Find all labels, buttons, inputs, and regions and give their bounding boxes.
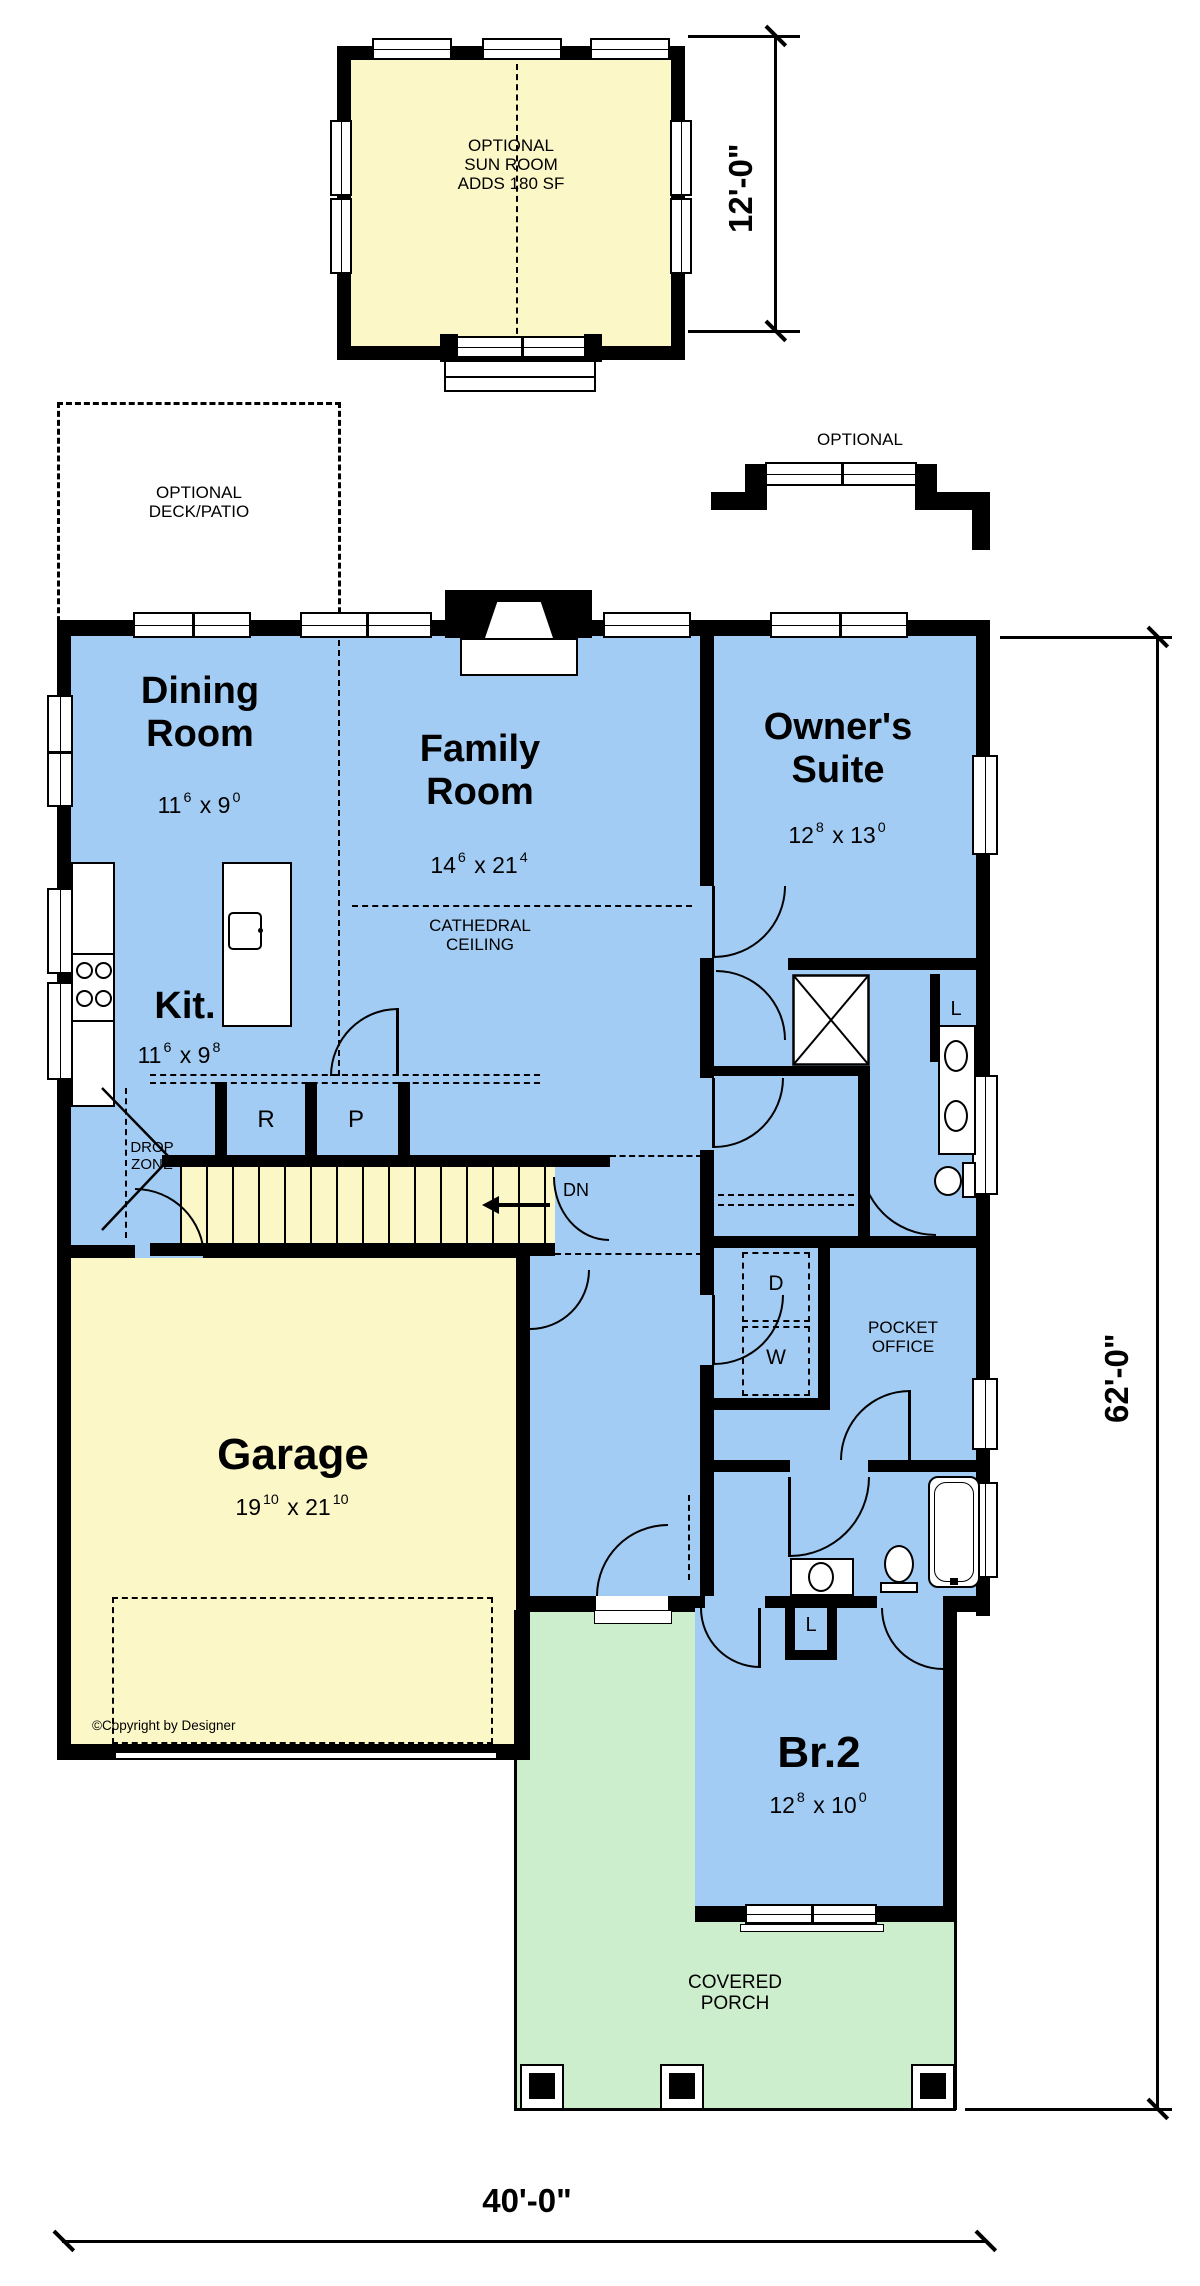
bay-wall-right-stub xyxy=(972,492,990,550)
dim-bottom-line xyxy=(62,2240,987,2243)
owners-sink-2 xyxy=(944,1100,968,1132)
sun-room-label: OPTIONAL SUN ROOM ADDS 180 SF xyxy=(396,136,626,193)
porch-edge-left xyxy=(514,1610,517,2110)
pocket-office-label: POCKET OFFICE xyxy=(833,1318,973,1356)
br2-sliding-window xyxy=(745,1904,877,1924)
wall-front-left xyxy=(530,1596,596,1612)
down-marker: DN xyxy=(552,1180,600,1201)
linen-owner-marker: L xyxy=(936,998,976,1021)
hall-bath-sink xyxy=(808,1562,834,1592)
sunroom-dim-text: 12'-0" xyxy=(722,132,774,244)
owners-size: 128 x 130 xyxy=(728,822,948,849)
tub-drain xyxy=(950,1578,958,1585)
linen-hall-marker: L xyxy=(789,1614,833,1637)
bay-window xyxy=(765,462,917,486)
kitchen-size: 116 x 98 xyxy=(95,1042,265,1069)
sun-room-window-left-2 xyxy=(330,198,352,274)
dining-window-top xyxy=(133,612,251,638)
wall-family-owners-a xyxy=(700,636,714,886)
hall-cased-opening xyxy=(688,1495,690,1580)
wall-family-owners-b xyxy=(700,958,714,1078)
br2-size: 128 x 100 xyxy=(719,1792,919,1819)
wall-wic-top xyxy=(714,1066,858,1076)
island-faucet xyxy=(258,928,263,933)
wall-br2-bottom-a xyxy=(695,1906,745,1922)
owners-toilet-tank xyxy=(962,1162,976,1198)
wall-pocket-office-bottom-b xyxy=(868,1460,976,1472)
porch-column-1 xyxy=(520,2064,564,2110)
pantry-door-leaf xyxy=(396,1008,399,1076)
kitchen-window-left-2 xyxy=(47,982,73,1080)
porch-column-3 xyxy=(911,2064,955,2110)
stair-dashed-upper xyxy=(610,1155,702,1157)
refrigerator-marker: R xyxy=(238,1106,294,1134)
wall-br2-top-a xyxy=(695,1596,705,1608)
hall-bath-door-leaf xyxy=(788,1477,791,1557)
dining-size: 116 x 90 xyxy=(90,792,310,819)
wall-garage-top-a xyxy=(57,1245,135,1258)
sunroom-dim-ext-top xyxy=(688,35,800,38)
bay-label: OPTIONAL xyxy=(790,430,930,449)
dining-label: Dining Room xyxy=(90,670,310,755)
owners-sink-1 xyxy=(944,1040,968,1072)
family-label: Family Room xyxy=(360,728,600,813)
island-sink xyxy=(228,912,262,950)
br2-window-sill xyxy=(740,1924,884,1932)
tub-inner xyxy=(934,1482,974,1582)
sun-room-sliding-door xyxy=(456,336,586,358)
kitchen-counter xyxy=(71,862,115,1107)
cathedral-ceiling-line xyxy=(352,905,692,907)
sun-room-structure xyxy=(337,46,685,360)
garage-door xyxy=(115,1752,497,1759)
cooktop-burner-4 xyxy=(95,990,112,1007)
dim-right-ext-top xyxy=(1000,636,1172,639)
dining-window-left xyxy=(47,695,73,807)
dim-right-text: 62'-0" xyxy=(1098,1308,1154,1448)
garage-label: Garage xyxy=(148,1430,438,1479)
sun-room-center-line xyxy=(516,64,518,344)
cathedral-label: CATHEDRAL CEILING xyxy=(380,916,580,954)
floor-plan: OPTIONAL SUN ROOM ADDS 180 SF 12'-0" OPT… xyxy=(0,0,1200,2286)
wall-garage-top-b xyxy=(205,1245,530,1258)
covered-porch-label: COVERED PORCH xyxy=(630,1972,840,2015)
porch-edge-bottom xyxy=(514,2108,956,2111)
pantry-marker: P xyxy=(328,1106,384,1134)
stairs-dn-arrow-shaft xyxy=(498,1203,550,1207)
owners-label: Owner's Suite xyxy=(728,706,948,791)
owners-toilet-bowl xyxy=(934,1166,962,1196)
wall-rp-left xyxy=(215,1082,227,1162)
pocket-office-door-leaf xyxy=(908,1390,911,1460)
kitchen-window-left-1 xyxy=(47,888,73,974)
cooktop-burner-1 xyxy=(76,962,93,979)
deck-label: OPTIONAL DECK/PATIO xyxy=(99,483,299,521)
wall-hall-east-a xyxy=(700,1150,714,1295)
cooktop-burner-2 xyxy=(95,962,112,979)
owners-window-top xyxy=(770,612,908,638)
wall-br2-right xyxy=(943,1596,957,1922)
br2-label: Br.2 xyxy=(719,1728,919,1777)
wall-wic-bath-divider xyxy=(858,1066,870,1246)
sun-room-door-jamb-right xyxy=(584,334,602,362)
copyright-label: ©Copyright by Designer xyxy=(92,1718,372,1733)
wall-laundry-bottom xyxy=(700,1398,830,1410)
sun-room-window-right-1 xyxy=(670,120,692,196)
family-size: 146 x 214 xyxy=(360,852,600,879)
bay-wall-left xyxy=(745,464,767,510)
porch-column-2 xyxy=(660,2064,704,2110)
fireplace-hearth xyxy=(460,638,578,676)
wic-door-leaf xyxy=(712,1078,715,1148)
laundry-door-leaf xyxy=(712,1295,715,1365)
washer-marker: W xyxy=(748,1346,804,1370)
family-window-right xyxy=(603,612,691,638)
wall-rp-right xyxy=(398,1082,410,1162)
sunroom-dim-line xyxy=(774,36,777,333)
wall-br2-bottom-b xyxy=(877,1906,957,1922)
stairs-dn-arrow-head xyxy=(482,1196,499,1214)
kitchen-counter-line-1 xyxy=(71,953,115,955)
sunroom-dim-ext-bottom xyxy=(688,330,800,333)
br2-door-leaf xyxy=(758,1608,761,1668)
sun-room-window-left-1 xyxy=(330,120,352,196)
cooktop-burner-3 xyxy=(76,990,93,1007)
wall-linen-hall-bottom xyxy=(785,1650,837,1660)
hall-toilet-tank xyxy=(880,1582,918,1593)
dim-bottom-text: 40'-0" xyxy=(397,2182,657,2220)
hall-toilet-bowl xyxy=(884,1545,914,1583)
wall-stairs-top xyxy=(162,1155,610,1167)
dryer-marker: D xyxy=(748,1272,804,1296)
sun-room-step-line xyxy=(444,376,596,378)
front-door-threshold xyxy=(594,1610,672,1624)
wall-laundry-right xyxy=(818,1236,830,1406)
sun-room-window-top-3 xyxy=(590,38,670,60)
pocket-office-window xyxy=(972,1378,998,1450)
wall-owners-suite-bottom xyxy=(788,958,976,970)
drop-zone-label: DROP ZONE xyxy=(92,1140,212,1174)
owners-window-right xyxy=(972,755,998,855)
stair-dashed-lower xyxy=(555,1253,702,1255)
sun-room-window-right-2 xyxy=(670,198,692,274)
wall-br2-top-b xyxy=(765,1596,877,1608)
kitchen-label: Kit. xyxy=(120,985,250,1028)
wall-rp-mid xyxy=(305,1082,317,1162)
dining-family-divider xyxy=(338,640,340,1076)
family-window-left xyxy=(300,612,432,638)
garage-size: 1910 x 2110 xyxy=(148,1494,438,1521)
wall-pocket-office-bottom-a xyxy=(700,1460,790,1472)
wall-front-right xyxy=(668,1596,695,1612)
sun-room-window-top-2 xyxy=(482,38,562,60)
owners-door-leaf xyxy=(712,886,715,958)
shower xyxy=(792,974,870,1066)
wall-laundry-band-top xyxy=(714,1236,976,1248)
wic-rod-dashed xyxy=(718,1194,854,1206)
kitchen-counter-line-2 xyxy=(71,1020,115,1022)
dim-right-line xyxy=(1156,636,1159,2111)
wall-garage-right xyxy=(516,1245,530,1760)
sun-room-window-top-1 xyxy=(372,38,452,60)
dim-right-ext-bottom xyxy=(965,2108,1172,2111)
